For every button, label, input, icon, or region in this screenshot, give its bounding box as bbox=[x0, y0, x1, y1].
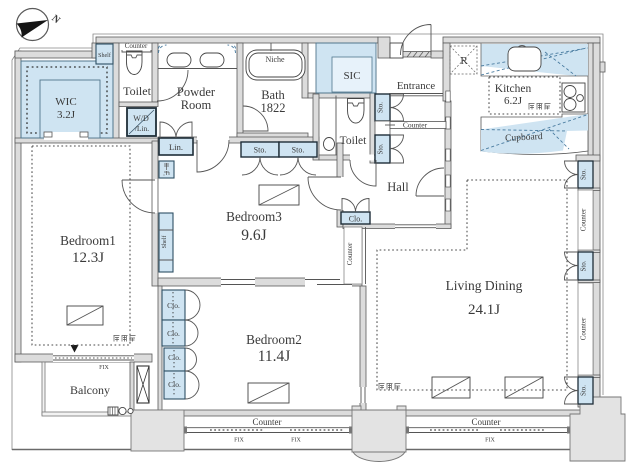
svg-text:9.6J: 9.6J bbox=[241, 227, 266, 244]
svg-text:Counter: Counter bbox=[580, 317, 588, 340]
svg-text:R: R bbox=[460, 55, 468, 67]
svg-text:Lin.: Lin. bbox=[169, 142, 183, 152]
svg-text:11.4J: 11.4J bbox=[258, 348, 291, 365]
svg-text:Clo.: Clo. bbox=[349, 215, 363, 224]
svg-text:Niche: Niche bbox=[265, 55, 285, 64]
svg-text:3.2J: 3.2J bbox=[57, 109, 76, 121]
svg-text:6.2J: 6.2J bbox=[504, 95, 523, 107]
svg-text:24.1J: 24.1J bbox=[468, 302, 500, 318]
svg-text:FIX: FIX bbox=[234, 438, 244, 444]
svg-text:WIC: WIC bbox=[55, 96, 76, 108]
svg-text:Counter: Counter bbox=[403, 121, 428, 130]
svg-text:Bedroom3: Bedroom3 bbox=[226, 209, 282, 224]
svg-text:W/D: W/D bbox=[133, 114, 149, 123]
svg-text:Counter: Counter bbox=[346, 242, 354, 265]
svg-text:Shelf: Shelf bbox=[161, 236, 168, 249]
svg-text:Clo.: Clo. bbox=[167, 301, 180, 310]
svg-text:FIX: FIX bbox=[99, 365, 109, 371]
svg-text:Kitchen: Kitchen bbox=[495, 83, 532, 95]
svg-text:Toilet: Toilet bbox=[123, 84, 151, 98]
svg-text:1822: 1822 bbox=[261, 101, 286, 115]
svg-text:SIC: SIC bbox=[343, 70, 360, 82]
svg-text:Clo.: Clo. bbox=[167, 329, 180, 338]
svg-text:Balcony: Balcony bbox=[70, 383, 110, 397]
svg-text:Sto.: Sto. bbox=[580, 385, 588, 396]
svg-text:Sto.: Sto. bbox=[254, 146, 267, 155]
svg-text:Entrance: Entrance bbox=[397, 80, 436, 92]
svg-text:Room: Room bbox=[181, 98, 212, 112]
svg-text:Counter: Counter bbox=[253, 417, 282, 427]
svg-text:Toilet: Toilet bbox=[340, 135, 367, 147]
svg-text:Shelf: Shelf bbox=[98, 52, 111, 59]
svg-text:Bedroom2: Bedroom2 bbox=[246, 332, 302, 347]
svg-text:FIX: FIX bbox=[485, 438, 495, 444]
svg-text:Sto.: Sto. bbox=[377, 102, 385, 113]
svg-text:Sto.: Sto. bbox=[580, 169, 588, 180]
svg-text:Powder: Powder bbox=[177, 85, 216, 99]
svg-text:Cupboard: Cupboard bbox=[505, 132, 543, 144]
svg-text:Bath: Bath bbox=[261, 88, 285, 102]
svg-text:/Lin.: /Lin. bbox=[135, 124, 149, 133]
svg-text:Sto.: Sto. bbox=[580, 260, 588, 271]
svg-text:Sto.: Sto. bbox=[292, 146, 305, 155]
svg-text:Clo.: Clo. bbox=[168, 353, 181, 362]
svg-text:Counter: Counter bbox=[580, 208, 588, 231]
svg-text:Counter: Counter bbox=[472, 417, 501, 427]
svg-text:Counter: Counter bbox=[125, 42, 148, 50]
svg-text:12.3J: 12.3J bbox=[72, 250, 104, 266]
svg-text:Bedroom1: Bedroom1 bbox=[60, 233, 116, 248]
svg-text:Living Dining: Living Dining bbox=[446, 278, 523, 293]
svg-text:FIX: FIX bbox=[291, 438, 301, 444]
svg-text:Hall: Hall bbox=[387, 180, 409, 194]
svg-text:Sto.: Sto. bbox=[377, 143, 385, 154]
svg-text:Clo.: Clo. bbox=[168, 380, 181, 389]
